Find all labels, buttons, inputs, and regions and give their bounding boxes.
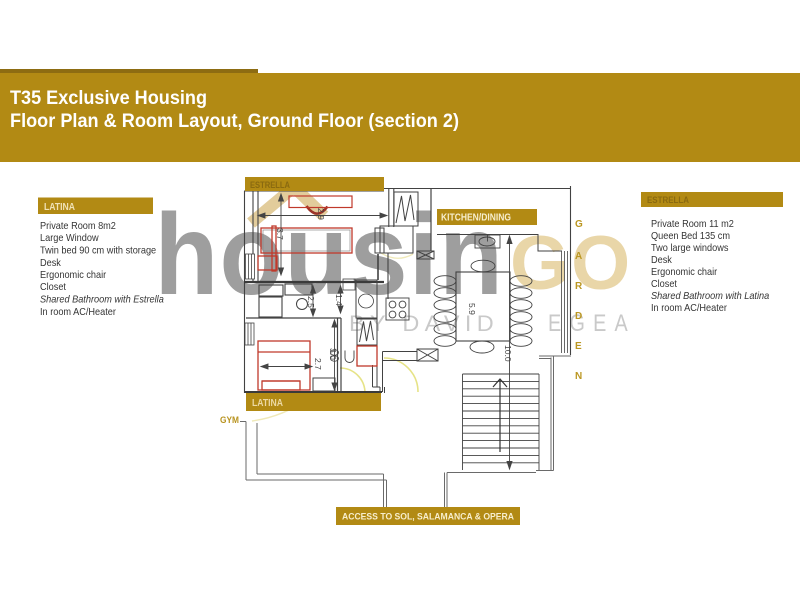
svg-text:Floor Plan & Room Layout, Grou: Floor Plan & Room Layout, Ground Floor (…: [10, 111, 459, 132]
svg-text:GYM: GYM: [220, 415, 239, 426]
svg-text:Private Room 11 m2: Private Room 11 m2: [651, 219, 734, 231]
svg-text:E: E: [575, 341, 582, 352]
svg-text:Twin bed 90 cm with storage: Twin bed 90 cm with storage: [40, 245, 156, 257]
svg-text:Ergonomic chair: Ergonomic chair: [651, 267, 718, 279]
svg-text:N: N: [575, 371, 582, 382]
svg-text:In room AC/Heater: In room AC/Heater: [40, 307, 117, 319]
svg-text:Two large windows: Two large windows: [651, 243, 729, 255]
svg-text:KITCHEN/DINING: KITCHEN/DINING: [441, 213, 511, 224]
svg-text:2.5: 2.5: [306, 296, 316, 308]
svg-text:LATINA: LATINA: [252, 398, 283, 409]
svg-text:Shared Bathroom with Estrella: Shared Bathroom with Estrella: [40, 294, 164, 306]
svg-text:D: D: [575, 311, 582, 322]
svg-text:2.7: 2.7: [313, 358, 323, 370]
svg-text:1.4: 1.4: [334, 294, 344, 306]
svg-text:Ergonomic chair: Ergonomic chair: [40, 270, 107, 282]
svg-text:G: G: [575, 219, 583, 230]
svg-text:Desk: Desk: [651, 255, 672, 267]
svg-text:T35 Exclusive Housing: T35 Exclusive Housing: [10, 88, 207, 109]
svg-text:Private Room 8m2: Private Room 8m2: [40, 221, 116, 233]
svg-text:Closet: Closet: [40, 282, 66, 294]
svg-text:LATINA: LATINA: [44, 202, 75, 213]
svg-text:3.0: 3.0: [328, 348, 338, 360]
svg-text:10.0: 10.0: [503, 345, 513, 362]
svg-text:2.9: 2.9: [316, 208, 326, 220]
svg-text:In room AC/Heater: In room AC/Heater: [651, 303, 728, 315]
svg-text:Queen Bed 135 cm: Queen Bed 135 cm: [651, 231, 730, 243]
svg-text:5.9: 5.9: [467, 303, 477, 315]
svg-text:Large Window: Large Window: [40, 233, 100, 245]
svg-text:3.7: 3.7: [275, 228, 285, 240]
svg-text:GO: GO: [510, 221, 632, 306]
svg-text:Closet: Closet: [651, 279, 677, 291]
svg-text:ACCESS TO SOL, SALAMANCA & OPE: ACCESS TO SOL, SALAMANCA & OPERA: [342, 512, 514, 523]
svg-text:ESTRELLA: ESTRELLA: [250, 180, 290, 191]
svg-text:Shared Bathroom with Latina: Shared Bathroom with Latina: [651, 291, 770, 303]
svg-text:ESTRELLA: ESTRELLA: [647, 195, 689, 206]
svg-text:R: R: [575, 281, 583, 292]
svg-text:A: A: [575, 251, 582, 262]
svg-text:Desk: Desk: [40, 258, 61, 270]
